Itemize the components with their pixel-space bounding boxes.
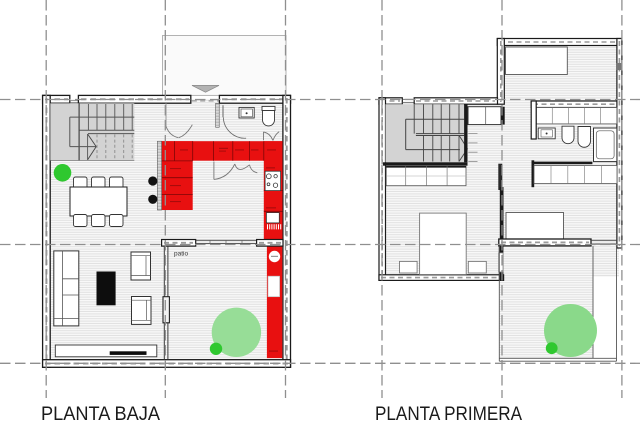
svg-text:PLANTA BAJA: PLANTA BAJA: [41, 403, 160, 425]
svg-text:PLANTA PRIMERA: PLANTA PRIMERA: [375, 403, 522, 425]
svg-text:patio: patio: [174, 250, 188, 257]
